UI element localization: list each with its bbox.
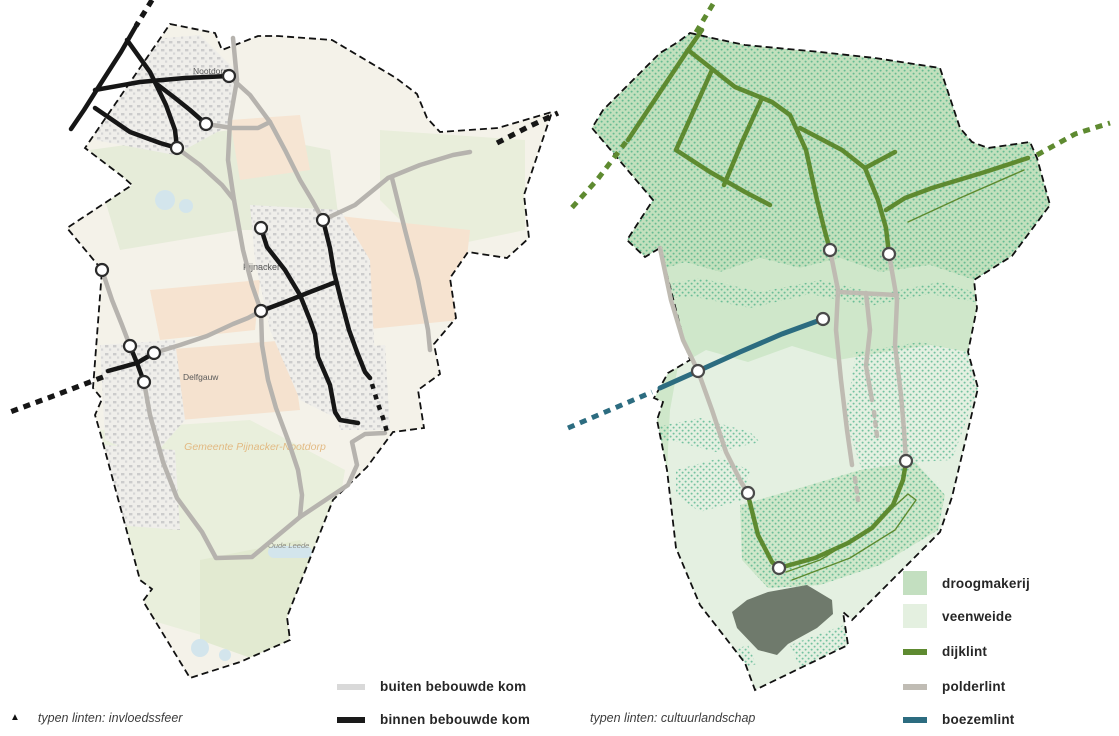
right-map-caption: typen linten: cultuurlandschap <box>590 711 755 725</box>
veenweide-area-swatch <box>903 604 927 628</box>
left-topo-base: Gemeente Pijnacker-Nootdorp Nootdorp Pij… <box>55 10 565 710</box>
caption-text: typen linten: cultuurlandschap <box>590 711 755 725</box>
legend-item-droogmakerij: droogmakerij <box>903 571 1030 595</box>
legend-label: boezemlint <box>942 712 1015 727</box>
legend-label: binnen bebouwde kom <box>380 712 530 727</box>
map-label-delfgauw: Delfgauw <box>183 372 219 382</box>
water-pond-4 <box>191 639 209 657</box>
boezemlint-line-swatch <box>903 715 927 725</box>
left-map-caption: ▲ typen linten: invloedssfeer <box>10 711 182 725</box>
legend-item-buiten-bebouwde-kom: buiten bebouwde kom <box>337 679 526 694</box>
caption-text: typen linten: invloedssfeer <box>38 711 183 725</box>
buiten-line-swatch <box>337 683 365 691</box>
legend-item-dijklint: dijklint <box>903 644 987 659</box>
droogmakerij-area-swatch <box>903 571 927 595</box>
legend-item-binnen-bebouwde-kom: binnen bebouwde kom <box>337 712 530 727</box>
polderlint-line-swatch <box>903 682 927 692</box>
right-map-cultuurlandschap <box>560 0 1119 731</box>
legend-label: droogmakerij <box>942 576 1030 591</box>
map-label-oude-leede: Oude Leede <box>268 541 309 550</box>
legend-label: dijklint <box>942 644 987 659</box>
legend-label: veenweide <box>942 609 1012 624</box>
builtup-emerald <box>105 445 180 530</box>
water-pond-2 <box>179 199 193 213</box>
legend-item-polderlint: polderlint <box>903 679 1006 694</box>
triangle-marker: ▲ <box>10 713 20 723</box>
dijklint-line-swatch <box>903 647 927 657</box>
water-pond-1 <box>155 190 175 210</box>
binnen-line-swatch <box>337 716 365 724</box>
legend-label: buiten bebouwde kom <box>380 679 526 694</box>
legend-item-veenweide: veenweide <box>903 604 1012 628</box>
legend-item-boezemlint: boezemlint <box>903 712 1015 727</box>
legend-label: polderlint <box>942 679 1006 694</box>
map-watermark: Gemeente Pijnacker-Nootdorp <box>184 441 326 453</box>
topo-urban-fringe-west <box>150 280 260 340</box>
left-map-invloedssfeer: Gemeente Pijnacker-Nootdorp Nootdorp Pij… <box>10 0 565 710</box>
water-pond-5 <box>219 649 231 661</box>
